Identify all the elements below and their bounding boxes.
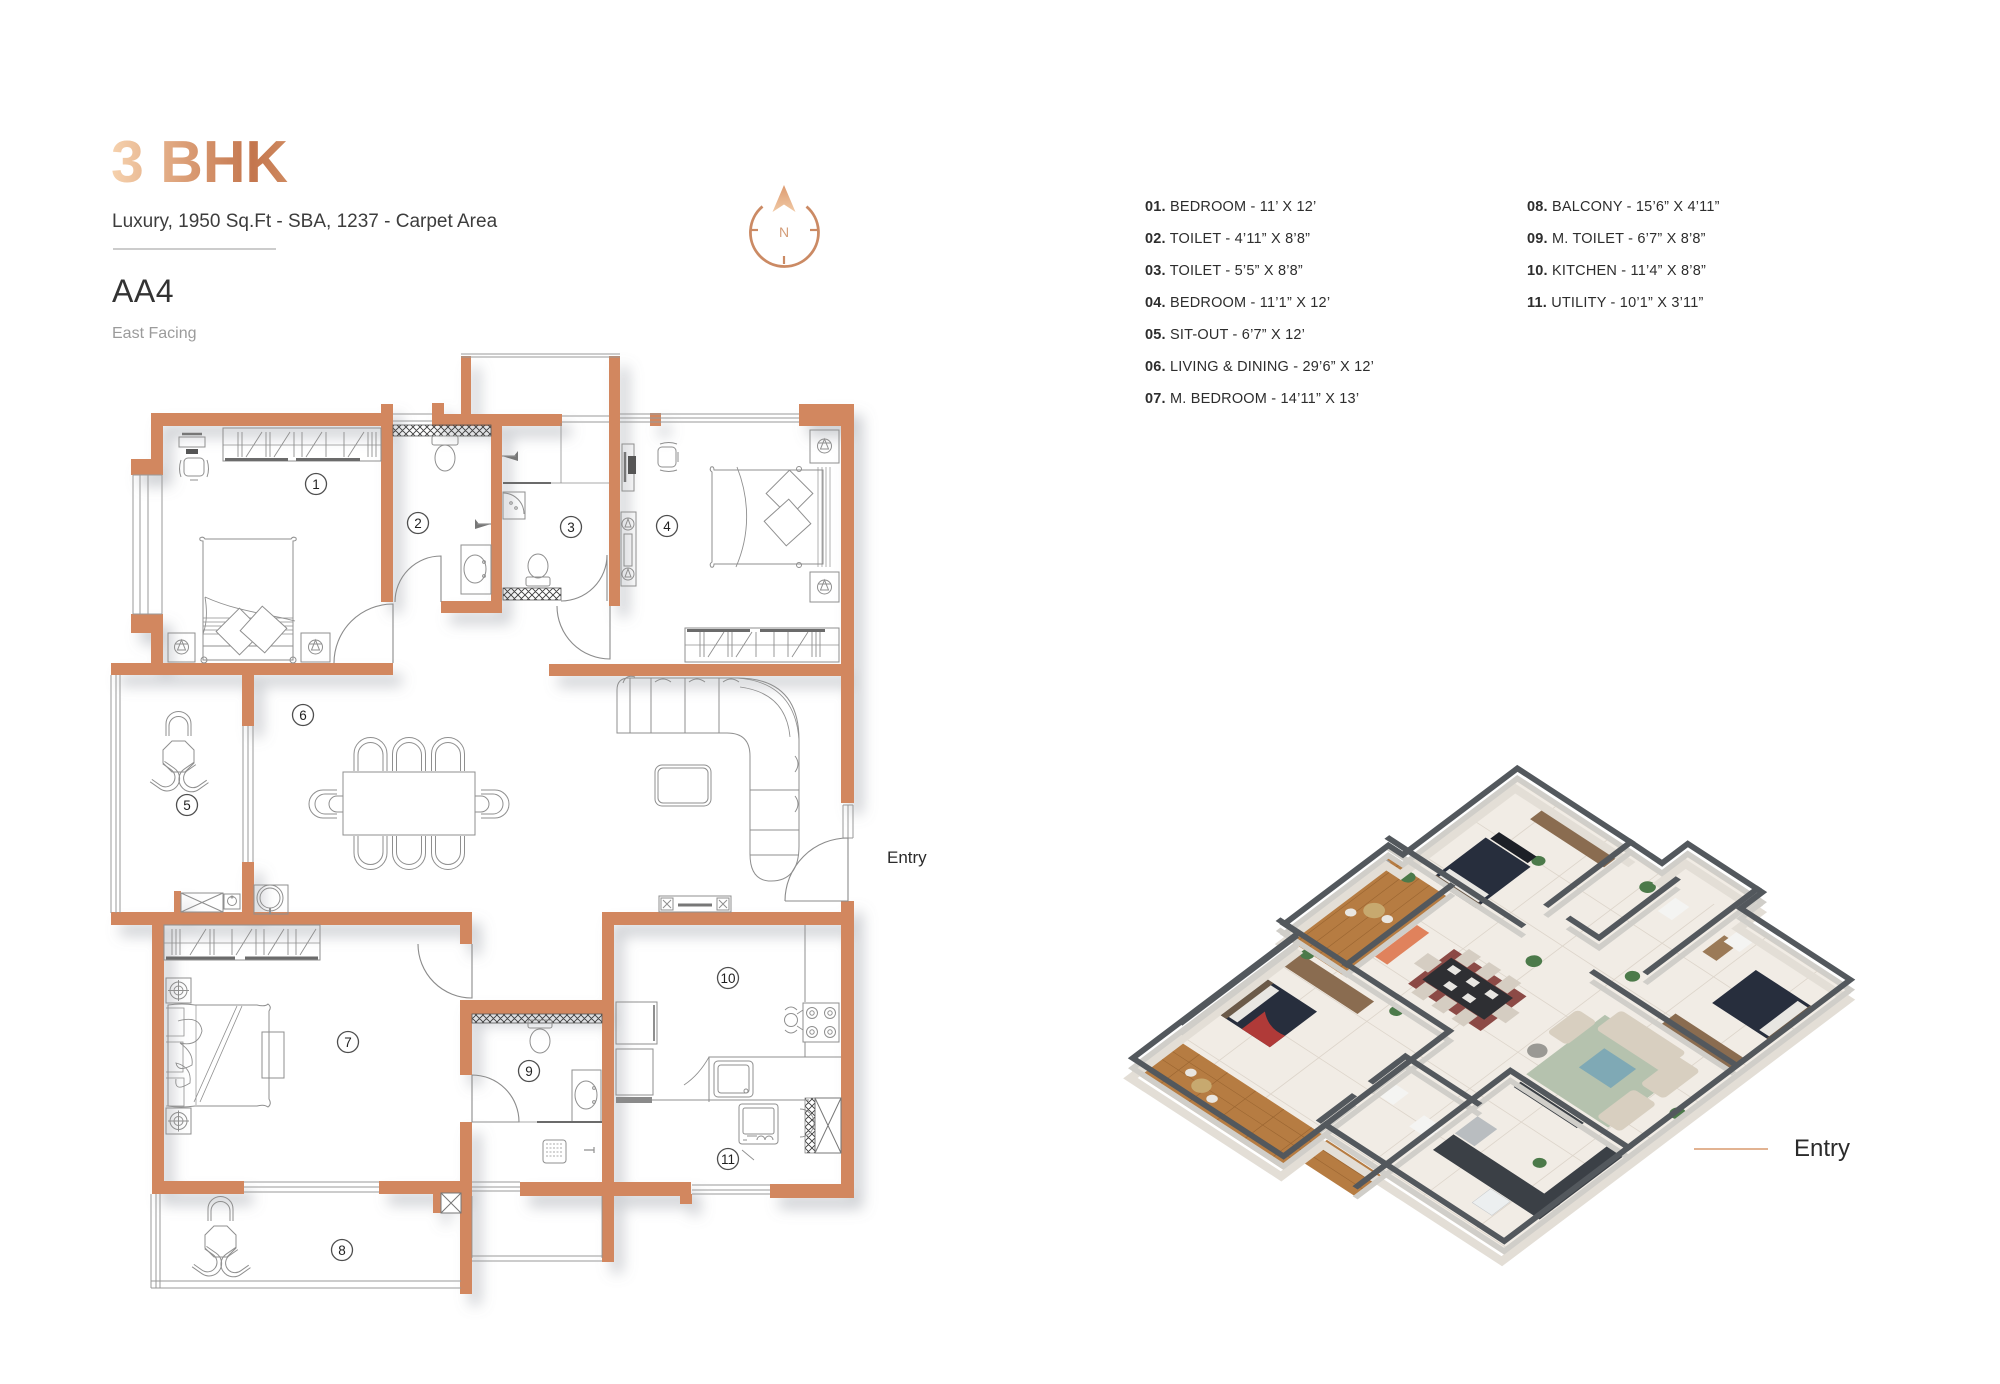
svg-text:07. M. BEDROOM - 14’11” X 13’: 07. M. BEDROOM - 14’11” X 13’ (1145, 391, 1359, 407)
svg-text:3: 3 (567, 520, 575, 535)
svg-text:02. TOILET - 4’11” X 8’8”: 02. TOILET - 4’11” X 8’8” (1145, 231, 1310, 247)
svg-text:N: N (779, 224, 789, 240)
svg-text:05. SIT-OUT - 6’7” X 12’: 05. SIT-OUT - 6’7” X 12’ (1145, 327, 1305, 343)
svg-text:2: 2 (414, 516, 422, 531)
svg-text:11: 11 (721, 1152, 735, 1167)
svg-text:10: 10 (720, 971, 735, 986)
svg-text:08. BALCONY - 15’6” X 4’11”: 08. BALCONY - 15’6” X 4’11” (1527, 199, 1720, 215)
svg-text:Luxury, 1950 Sq.Ft - SBA, 1237: Luxury, 1950 Sq.Ft - SBA, 1237 - Carpet … (112, 211, 498, 232)
svg-text:4: 4 (663, 519, 671, 534)
svg-text:AA4: AA4 (112, 273, 174, 309)
svg-text:06. LIVING & DINING - 29’6” X: 06. LIVING & DINING - 29’6” X 12’ (1145, 359, 1374, 375)
svg-text:03. TOILET - 5’5” X 8’8”: 03. TOILET - 5’5” X 8’8” (1145, 263, 1303, 279)
svg-text:1: 1 (312, 477, 320, 492)
svg-text:Entry: Entry (1794, 1135, 1850, 1162)
svg-text:7: 7 (344, 1035, 352, 1050)
svg-text:04. BEDROOM - 11’1” X 12’: 04. BEDROOM - 11’1” X 12’ (1145, 295, 1330, 311)
svg-text:11. UTILITY - 10’1” X 3’11”: 11. UTILITY - 10’1” X 3’11” (1527, 295, 1704, 311)
svg-text:5: 5 (183, 798, 191, 813)
svg-text:9: 9 (525, 1064, 533, 1079)
svg-text:East Facing: East Facing (112, 325, 196, 342)
svg-text:3 BHK: 3 BHK (111, 129, 288, 195)
svg-text:01. BEDROOM - 11’ X 12’: 01. BEDROOM - 11’ X 12’ (1145, 199, 1316, 215)
svg-text:10. KITCHEN - 11’4” X 8’8”: 10. KITCHEN - 11’4” X 8’8” (1527, 263, 1706, 279)
svg-text:6: 6 (299, 708, 307, 723)
svg-text:Entry: Entry (887, 848, 927, 867)
svg-text:09. M. TOILET - 6’7” X 8’8”: 09. M. TOILET - 6’7” X 8’8” (1527, 231, 1706, 247)
svg-text:8: 8 (338, 1243, 346, 1258)
